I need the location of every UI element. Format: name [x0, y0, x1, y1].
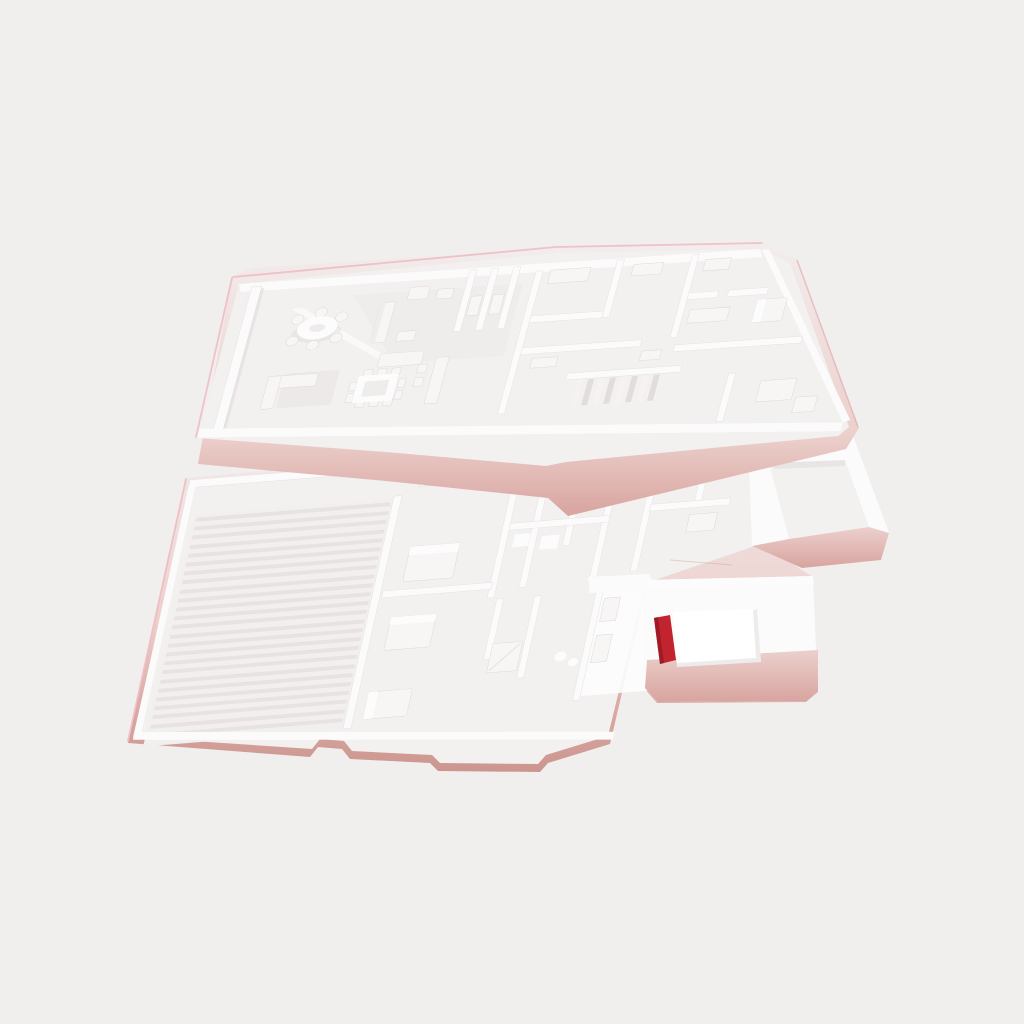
side-room-floor	[673, 609, 761, 667]
wardrobe-block	[703, 258, 732, 271]
storage-cube	[512, 533, 531, 547]
armchair	[407, 286, 430, 300]
storage-cube	[539, 535, 560, 550]
side-table	[436, 288, 455, 299]
wardrobe-block	[755, 378, 797, 402]
wardrobe-block	[687, 307, 731, 323]
wardrobe-block	[631, 262, 664, 276]
connector-wall	[588, 574, 652, 593]
wardrobe-block	[547, 267, 591, 283]
bed-middle-bedroom	[384, 614, 437, 651]
wardrobe-block	[529, 357, 558, 368]
wardrobe-block	[639, 350, 662, 361]
dining-table-inset	[361, 380, 389, 397]
scene-canvas	[0, 0, 1024, 1024]
wardrobe-block	[686, 512, 718, 532]
photo-3d-printed-floorplan-model	[0, 0, 1024, 1024]
coffee-table	[396, 331, 417, 342]
wardrobe-block	[792, 396, 818, 413]
bed-upper-bedroom	[403, 543, 461, 582]
bed-lower-bedroom	[363, 689, 413, 720]
